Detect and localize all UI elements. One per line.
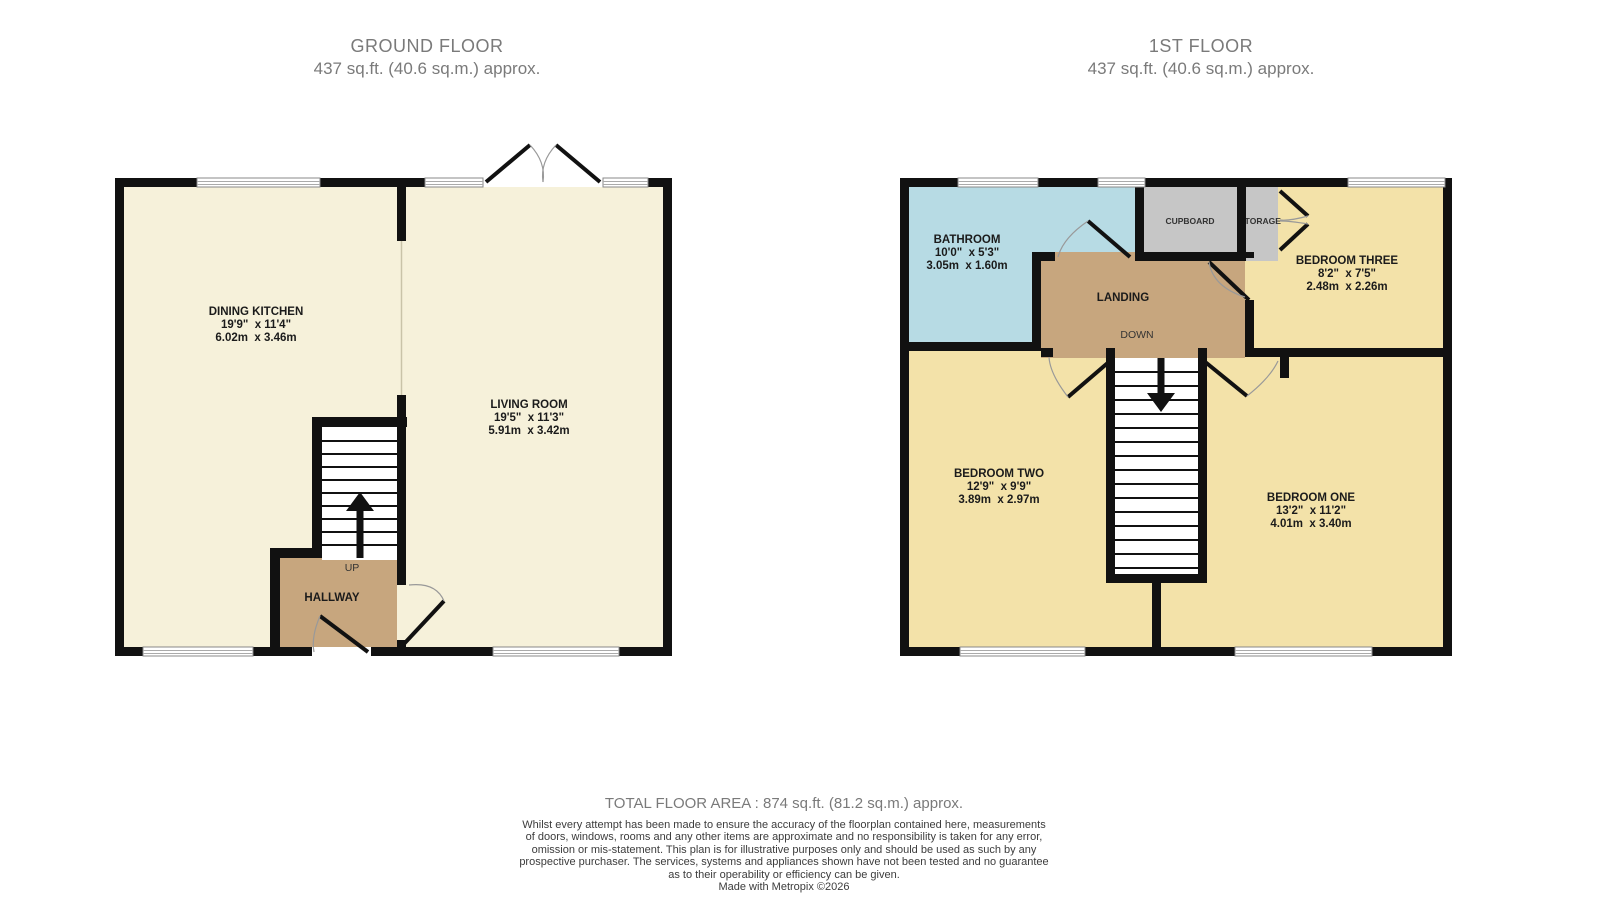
room-dims-imperial: 10'0" x 5'3" <box>935 247 999 259</box>
footer: TOTAL FLOOR AREA : 874 sq.ft. (81.2 sq.m… <box>0 795 1568 893</box>
stair-flight <box>1115 358 1198 574</box>
french-doors <box>483 145 603 187</box>
stairwell-left-wall <box>1106 348 1115 583</box>
wall <box>909 342 1032 351</box>
wall <box>1032 252 1041 351</box>
window <box>425 178 483 187</box>
wall <box>1245 252 1254 258</box>
window <box>960 647 1085 656</box>
room-label-bedroom-two: BEDROOM TWO 12'9" x 9'9" 3.89m x 2.97m <box>954 468 1044 506</box>
window <box>1235 647 1372 656</box>
hallway-left-wall <box>270 548 280 656</box>
disclaimer: Whilst every attempt has been made to en… <box>0 819 1568 893</box>
window <box>958 178 1038 187</box>
room-dims-imperial: 19'5" x 11'3" <box>494 412 564 424</box>
ground-floor-plan: DINING KITCHEN 19'9" x 11'4" 6.02m x 3.4… <box>115 145 672 656</box>
credit-line: Made with Metropix ©2026 <box>0 881 1568 893</box>
room-name: LIVING ROOM <box>490 399 567 411</box>
disclaimer-line: of doors, windows, rooms and any other i… <box>0 831 1568 843</box>
room-label-hallway: HALLWAY <box>304 592 359 604</box>
window <box>197 178 320 187</box>
stairs-up <box>322 427 397 560</box>
down-arrow-icon <box>1158 358 1165 394</box>
total-floor-area: TOTAL FLOOR AREA : 874 sq.ft. (81.2 sq.m… <box>0 795 1568 812</box>
room-dims-metric: 3.89m x 2.97m <box>958 494 1039 506</box>
wall <box>397 187 406 241</box>
room-name: DINING KITCHEN <box>209 306 304 318</box>
stairs-down <box>1115 358 1198 574</box>
window <box>1098 178 1145 187</box>
stairwell-left-wall <box>312 417 322 558</box>
room-label-dining-kitchen: DINING KITCHEN 19'9" x 11'4" 6.02m x 3.4… <box>209 306 304 344</box>
window <box>1348 178 1445 187</box>
disclaimer-line: prospective purchaser. The services, sys… <box>0 856 1568 868</box>
room-name: BEDROOM THREE <box>1296 255 1399 267</box>
wall <box>1041 252 1055 261</box>
wall <box>1237 187 1246 261</box>
stairwell-top-wall <box>312 417 407 427</box>
room-dims-metric: 4.01m x 3.40m <box>1270 518 1351 530</box>
first-floor-plan: CUPBOARD STORAGE <box>900 178 1452 656</box>
room-dims-metric: 3.05m x 1.60m <box>926 260 1007 272</box>
stairwell-right-wall <box>1198 348 1207 583</box>
room-label-landing: LANDING <box>1097 292 1149 304</box>
window <box>603 178 648 187</box>
disclaimer-line: as to their operability or efficiency ca… <box>0 869 1568 881</box>
wall <box>1152 583 1161 656</box>
wall <box>1041 348 1053 357</box>
stairs-down-label: DOWN <box>1120 329 1153 341</box>
door-arc <box>530 145 543 182</box>
door-leaf <box>486 145 530 182</box>
wall <box>1135 187 1144 261</box>
room-name: BEDROOM TWO <box>954 468 1044 480</box>
floorplan-canvas: DINING KITCHEN 19'9" x 11'4" 6.02m x 3.4… <box>0 0 1600 912</box>
disclaimer-line: omission or mis-statement. This plan is … <box>0 844 1568 856</box>
door-opening <box>397 585 406 640</box>
room-name: BEDROOM ONE <box>1267 492 1356 504</box>
room-dims-metric: 5.91m x 3.42m <box>488 425 569 437</box>
wall <box>1135 252 1245 261</box>
window <box>493 647 619 656</box>
room-dims-imperial: 12'9" x 9'9" <box>967 481 1031 493</box>
wall <box>1280 357 1289 378</box>
door-arc <box>543 145 556 182</box>
room-label-bedroom-one: BEDROOM ONE 13'2" x 11'2" 4.01m x 3.40m <box>1267 492 1356 530</box>
room-dims-metric: 6.02m x 3.46m <box>215 332 296 344</box>
up-arrow-icon <box>357 510 364 558</box>
room-dims-metric: 2.48m x 2.26m <box>1306 281 1387 293</box>
door-leaf <box>556 145 600 182</box>
room-dims-imperial: 19'9" x 11'4" <box>221 319 291 331</box>
disclaimer-line: Whilst every attempt has been made to en… <box>0 819 1568 831</box>
wall <box>1245 348 1452 357</box>
stairs-up-label: UP <box>345 562 360 574</box>
window <box>143 647 253 656</box>
room-label-living-room: LIVING ROOM 19'5" x 11'3" 5.91m x 3.42m <box>488 399 569 437</box>
room-name: BATHROOM <box>934 234 1001 246</box>
room-label-cupboard: CUPBOARD <box>1165 216 1214 226</box>
room-label-bathroom: BATHROOM 10'0" x 5'3" 3.05m x 1.60m <box>926 234 1007 272</box>
stairwell-bottom-wall <box>1106 574 1207 583</box>
room-dims-imperial: 8'2" x 7'5" <box>1318 268 1376 280</box>
room-dims-imperial: 13'2" x 11'2" <box>1276 505 1346 517</box>
